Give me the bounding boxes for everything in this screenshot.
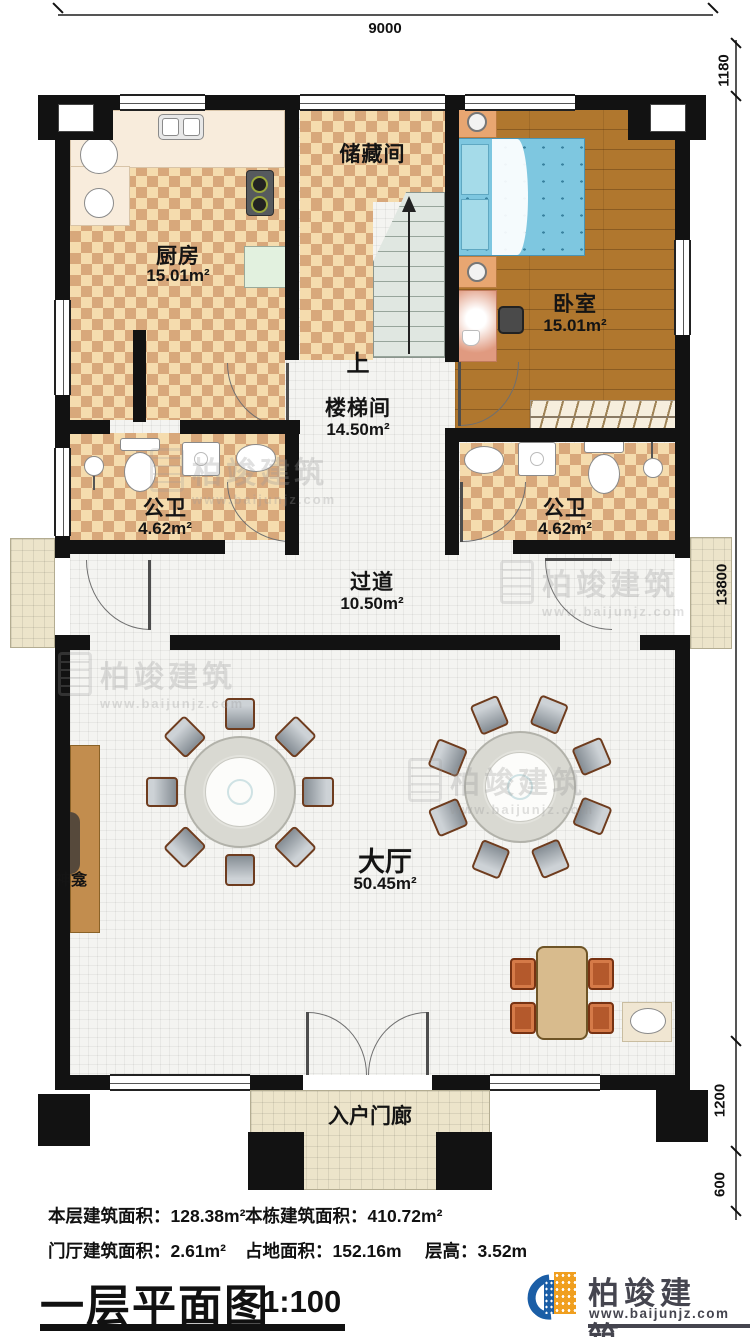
dim-line-top <box>58 14 713 16</box>
porch-column-left <box>248 1132 304 1190</box>
entry-door-opening <box>303 1075 432 1090</box>
rect-table <box>536 946 588 1040</box>
stat-label: 层高： <box>425 1241 478 1261</box>
stat-story-height: 层高：3.52m <box>425 1238 527 1263</box>
bedroom-area: 15.01m² <box>520 316 630 336</box>
wall-corridor-b <box>170 635 560 650</box>
stove-burner <box>251 176 268 193</box>
window-storage-top <box>300 94 445 111</box>
stair-up-label: 上 <box>336 344 380 378</box>
watermark: 柏竣建筑 www.baijunjz.com <box>500 560 686 619</box>
dim-top-9000: 9000 <box>340 20 430 37</box>
window-hall-bottom-left <box>110 1074 250 1091</box>
wall-kitchen-bathL-a <box>55 420 110 434</box>
watermark: 柏竣建筑 www.baijunjz.com <box>58 652 244 711</box>
stat-value: 2.61m² <box>171 1241 226 1261</box>
nightstand-lamp <box>467 262 487 282</box>
window-kitchen-top <box>120 94 205 111</box>
porch-column-right <box>436 1132 492 1190</box>
corridor-area: 10.50m² <box>322 594 422 614</box>
wall-corridor-a <box>55 635 90 650</box>
watermark-brand: 柏竣建筑 <box>192 448 336 492</box>
wall-bedroom-bathR <box>445 428 690 442</box>
dim-right-1200: 1200 <box>712 1071 729 1131</box>
porch-label: 入户门廊 <box>310 1100 430 1130</box>
bedroom-rug <box>455 290 497 362</box>
bedroom-door-leaf <box>458 362 461 426</box>
bedroom-label: 卧室 <box>520 288 630 318</box>
stove-burner <box>251 196 268 213</box>
stat-value: 152.16m <box>333 1241 402 1261</box>
wall-kitchen-bathL-b <box>180 420 300 434</box>
wall-bathR-left <box>445 430 459 555</box>
chair <box>510 1002 536 1034</box>
shrine-detail <box>70 812 80 874</box>
wall-corridor-c <box>640 635 690 650</box>
watermark-logo-icon <box>150 448 184 492</box>
chair <box>588 1002 614 1034</box>
shower-cord <box>651 440 653 458</box>
bathR-door-leaf <box>460 482 463 542</box>
toilet-bowl <box>588 454 620 494</box>
stat-label: 本层建筑面积： <box>48 1206 171 1226</box>
nightstand-lamp <box>467 112 487 132</box>
watermark-logo-icon <box>408 758 442 802</box>
floor-plan-canvas: 9000 1180 13800 1200 600 上 <box>0 0 750 1337</box>
stair-arrow-stem <box>408 212 410 354</box>
stairwell-area: 14.50m² <box>283 420 433 440</box>
bathL-label: 公卫 <box>115 492 215 522</box>
entry-door-leaf-left <box>306 1012 309 1075</box>
corner-sink <box>630 1008 666 1034</box>
storage-label: 储藏间 <box>310 138 435 168</box>
entry-door-leaf-right <box>426 1012 429 1075</box>
round-table-center <box>227 779 253 805</box>
stat-label: 本栋建筑面积： <box>245 1206 368 1226</box>
brand-website: www.baijunjz.com <box>589 1306 730 1321</box>
window-bathL-left <box>54 448 71 536</box>
kitchen-fridge <box>244 246 286 288</box>
stat-building-area: 本栋建筑面积：410.72m² <box>245 1203 442 1228</box>
stair-arrow-head <box>402 196 416 212</box>
shower-head <box>84 456 104 476</box>
chair <box>146 777 178 807</box>
stat-label: 门厅建筑面积： <box>48 1241 171 1261</box>
wall-bathR-bottom <box>513 540 690 554</box>
bed-pillow <box>461 199 489 250</box>
wall-kitchen-storage <box>285 95 299 360</box>
title-scale: 1:100 <box>262 1284 341 1320</box>
watermark-brand: 柏竣建筑 <box>450 758 594 802</box>
bed-pillow <box>461 144 489 195</box>
bathR-label: 公卫 <box>515 492 615 522</box>
shrine-label: 神龛 <box>40 866 102 890</box>
kitchen-round-counter-item <box>84 188 114 218</box>
bathR-area: 4.62m² <box>515 519 615 539</box>
chair <box>588 958 614 990</box>
wall-bathL-bottom <box>55 540 225 554</box>
brand-underline <box>588 1324 750 1328</box>
shower-cord <box>93 476 95 490</box>
pier-window <box>58 104 94 132</box>
stat-foyer-area: 门厅建筑面积：2.61m² <box>48 1238 226 1263</box>
watermark-brand: 柏竣建筑 <box>542 560 686 604</box>
watermark-logo-icon <box>500 560 534 604</box>
stat-land-area: 占地面积：152.16m <box>245 1238 402 1263</box>
hall-area: 50.45m² <box>330 874 440 894</box>
watermark-brand: 柏竣建筑 <box>100 652 244 696</box>
dim-right-600: 600 <box>712 1155 729 1215</box>
brand-logo: 柏竣建筑 www.baijunjz.com <box>528 1268 728 1330</box>
storage-floor-strip <box>300 200 373 360</box>
stat-label: 占地面积： <box>245 1241 333 1261</box>
window-bedroom-top <box>465 94 575 111</box>
side-door-opening-left <box>55 558 70 635</box>
pier-window <box>650 104 686 132</box>
shower-head <box>643 458 663 478</box>
bathroom-sink <box>464 446 504 474</box>
kitchen-sink-basin <box>183 118 200 136</box>
dim-tick <box>707 2 718 13</box>
dim-right-13800: 13800 <box>714 550 731 620</box>
side-door-leaf-left <box>148 560 151 630</box>
kitchen-area: 15.01m² <box>128 266 228 286</box>
chair <box>302 777 334 807</box>
side-platform-left <box>10 538 55 648</box>
column-bottom-left <box>38 1094 90 1146</box>
dim-right-1180: 1180 <box>716 41 733 101</box>
watermark-logo-icon <box>58 652 92 696</box>
corridor-label: 过道 <box>322 566 422 596</box>
kitchen-round-counter-item <box>80 136 118 174</box>
wardrobe-rail <box>530 416 676 418</box>
logo-building-icon <box>554 1272 576 1314</box>
bathL-area: 4.62m² <box>115 519 215 539</box>
window-kitchen-left <box>54 300 71 395</box>
chair <box>225 854 255 886</box>
stairwell-label: 楼梯间 <box>283 392 433 422</box>
watermark: 柏竣建筑 www.baijunjz.com <box>408 758 594 817</box>
window-bedroom-right <box>674 240 691 335</box>
title-underline <box>40 1324 345 1331</box>
stat-floor-area: 本层建筑面积：128.38m² <box>48 1203 245 1228</box>
window-hall-bottom-right <box>490 1074 600 1091</box>
watermark-url: www.baijunjz.com <box>542 604 686 619</box>
stat-value: 128.38m² <box>171 1206 246 1226</box>
kitchen-sink-basin <box>162 118 179 136</box>
watermark-url: www.baijunjz.com <box>450 802 594 817</box>
watermark-url: www.baijunjz.com <box>100 696 244 711</box>
bed-blanket-fold <box>492 139 528 255</box>
wall-kitchen-stub <box>133 330 146 422</box>
washing-machine-door <box>530 452 544 466</box>
dim-tick <box>52 2 63 13</box>
wall-stair-bedroom <box>445 95 459 362</box>
stat-value: 3.52m <box>478 1241 528 1261</box>
column-bottom-right <box>656 1090 708 1142</box>
chair <box>510 958 536 990</box>
stat-value: 410.72m² <box>368 1206 443 1226</box>
waste-bin <box>462 330 480 346</box>
